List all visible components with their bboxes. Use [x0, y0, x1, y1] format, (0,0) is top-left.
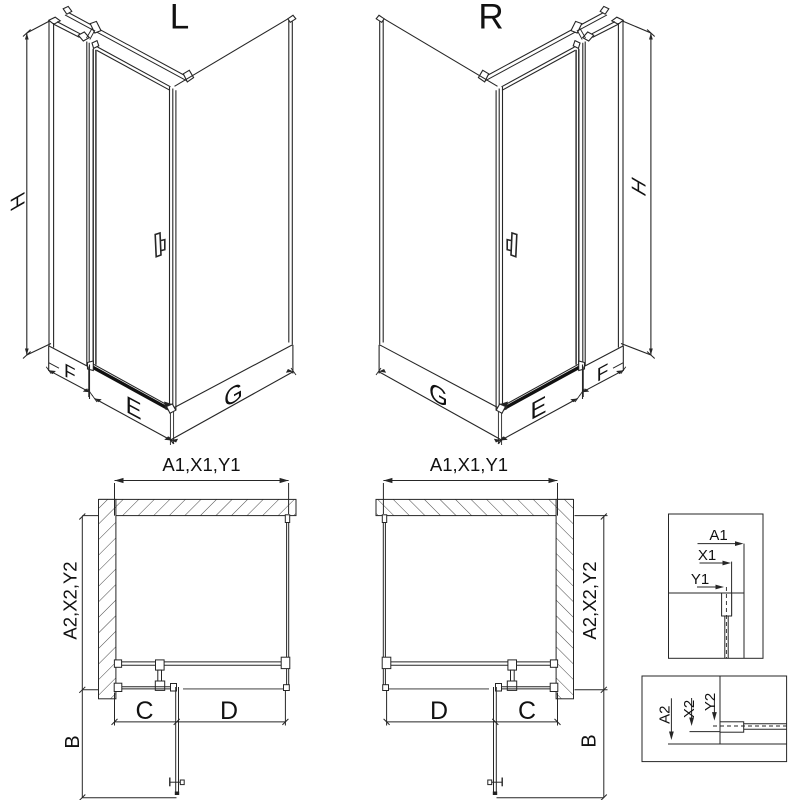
svg-text:D: D [220, 697, 238, 725]
svg-text:Y1: Y1 [691, 571, 709, 588]
svg-text:A2: A2 [656, 706, 673, 724]
svg-text:C: C [518, 697, 536, 725]
svg-text:L: L [170, 0, 189, 37]
svg-text:Y2: Y2 [702, 693, 719, 711]
svg-text:A2,X2,Y2: A2,X2,Y2 [579, 561, 600, 639]
svg-text:A2,X2,Y2: A2,X2,Y2 [60, 561, 81, 639]
svg-text:D: D [430, 697, 448, 725]
svg-text:B: B [62, 735, 84, 748]
svg-text:A1,X1,Y1: A1,X1,Y1 [162, 454, 240, 475]
svg-text:A1: A1 [709, 527, 727, 544]
svg-text:X2: X2 [681, 700, 698, 718]
svg-text:B: B [579, 734, 601, 747]
svg-text:C: C [135, 697, 153, 725]
svg-text:A1,X1,Y1: A1,X1,Y1 [430, 454, 508, 475]
svg-text:X1: X1 [698, 547, 716, 564]
svg-text:R: R [478, 0, 503, 37]
